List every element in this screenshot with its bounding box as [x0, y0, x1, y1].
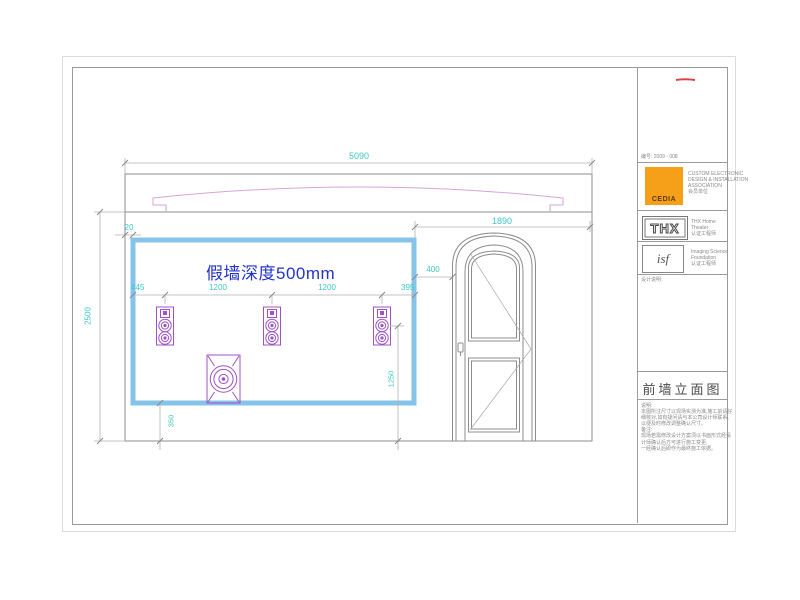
dim-left-offset: 445	[131, 283, 155, 292]
dim-speaker-spacing-2: 1200	[307, 283, 347, 292]
text-line: 认证工程师	[691, 231, 716, 237]
divider	[638, 241, 727, 242]
design-note-label: 设计说明:	[641, 277, 662, 283]
divider	[638, 210, 727, 211]
doc-number-line: 编号: 2009 - 008	[641, 154, 678, 160]
isf-text: Imaging ScienceFoundation认证工程师	[691, 249, 728, 267]
speaker-left	[157, 307, 174, 345]
notes: 说明:本图所注尺寸以现场实测为准,施工前请仔细核对,如有疑问请与本公司设计师联系…	[641, 403, 732, 452]
text-line: 现场若需修改设计方案须以书面形式经设	[641, 433, 732, 439]
dim-bottom-offset: 350	[167, 415, 176, 428]
text-line: 认证工程师	[691, 261, 728, 267]
text-line: 一经确认后即作为最终施工依据。	[641, 446, 732, 452]
ceiling-molding	[153, 187, 563, 212]
isf-logo-text: isf	[657, 251, 669, 267]
cedia-logo-text: CEDIA	[652, 194, 676, 205]
dim-wall-to-door: 400	[414, 265, 452, 274]
dim-right-offset: 395	[401, 283, 425, 292]
thx-logo: THX	[642, 216, 688, 240]
thx-text: THX HomeTheater认证工程师	[691, 219, 716, 237]
speaker-center	[264, 307, 281, 345]
dim-speaker-spacing-1: 1200	[198, 283, 238, 292]
false-wall-annotation: 假墙深度500mm	[206, 259, 335, 284]
dim-speaker-center-height: 1250	[387, 371, 396, 388]
dim-wall-width: 5090	[338, 151, 380, 161]
isf-logo: isf	[642, 245, 684, 273]
text-line: 会员单位	[688, 189, 748, 195]
divider	[638, 162, 727, 163]
door-handle	[458, 343, 463, 356]
door	[453, 233, 536, 441]
subwoofer	[207, 355, 240, 403]
divider	[638, 399, 727, 400]
cedia-logo: CEDIA	[645, 167, 683, 205]
title-block: 编号: 2009 - 008 CEDIA CUSTOM ELECTRONICDE…	[637, 67, 727, 523]
divider	[638, 274, 727, 275]
sheet-title: 前墙立面图	[638, 379, 727, 398]
speaker-right	[374, 307, 391, 345]
dim-right-span: 1890	[481, 216, 523, 226]
cedia-text: CUSTOM ELECTRONICDESIGN & INSTALLATIONAS…	[688, 171, 748, 195]
thx-logo-text: THX	[651, 221, 680, 236]
dim-wall-height: 2500	[84, 307, 93, 325]
dim-edge-gap: 20	[119, 223, 139, 232]
dimension-lines	[94, 158, 592, 450]
divider	[638, 371, 727, 372]
drawing-sheet: 5090 1890 400 20 445 1200 1200 395 2500 …	[0, 0, 800, 600]
